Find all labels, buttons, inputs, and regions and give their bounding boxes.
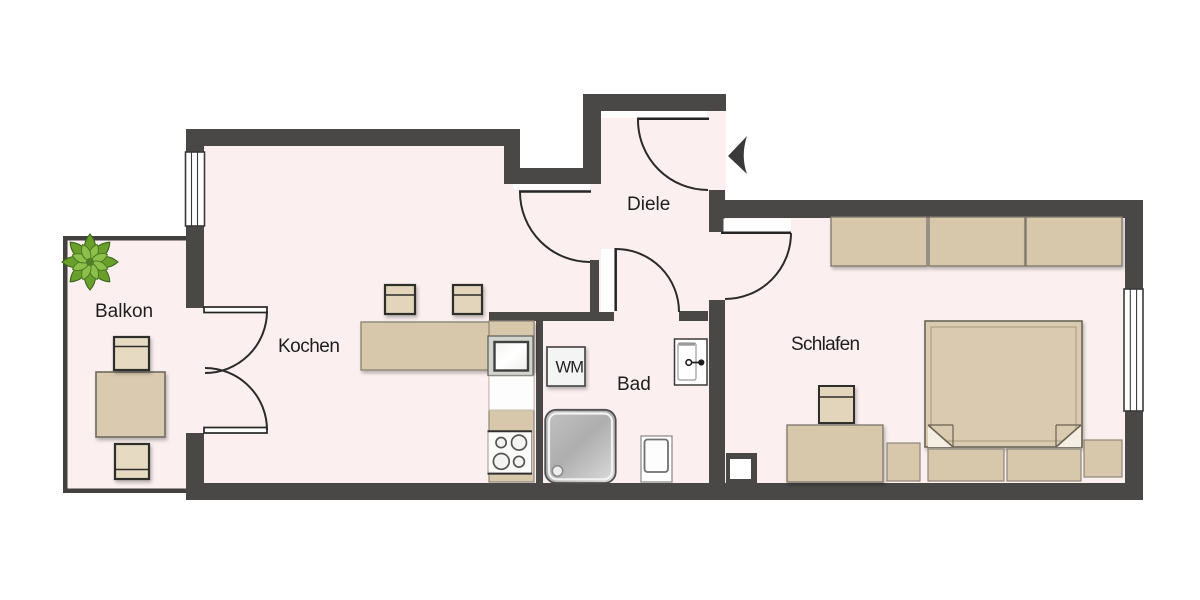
- svg-text:Diele: Diele: [627, 194, 670, 215]
- svg-text:Balkon: Balkon: [95, 301, 153, 322]
- svg-text:Schlafen: Schlafen: [791, 334, 859, 355]
- svg-text:WM: WM: [556, 359, 584, 377]
- svg-text:Bad: Bad: [617, 374, 651, 395]
- svg-text:Kochen: Kochen: [278, 336, 339, 357]
